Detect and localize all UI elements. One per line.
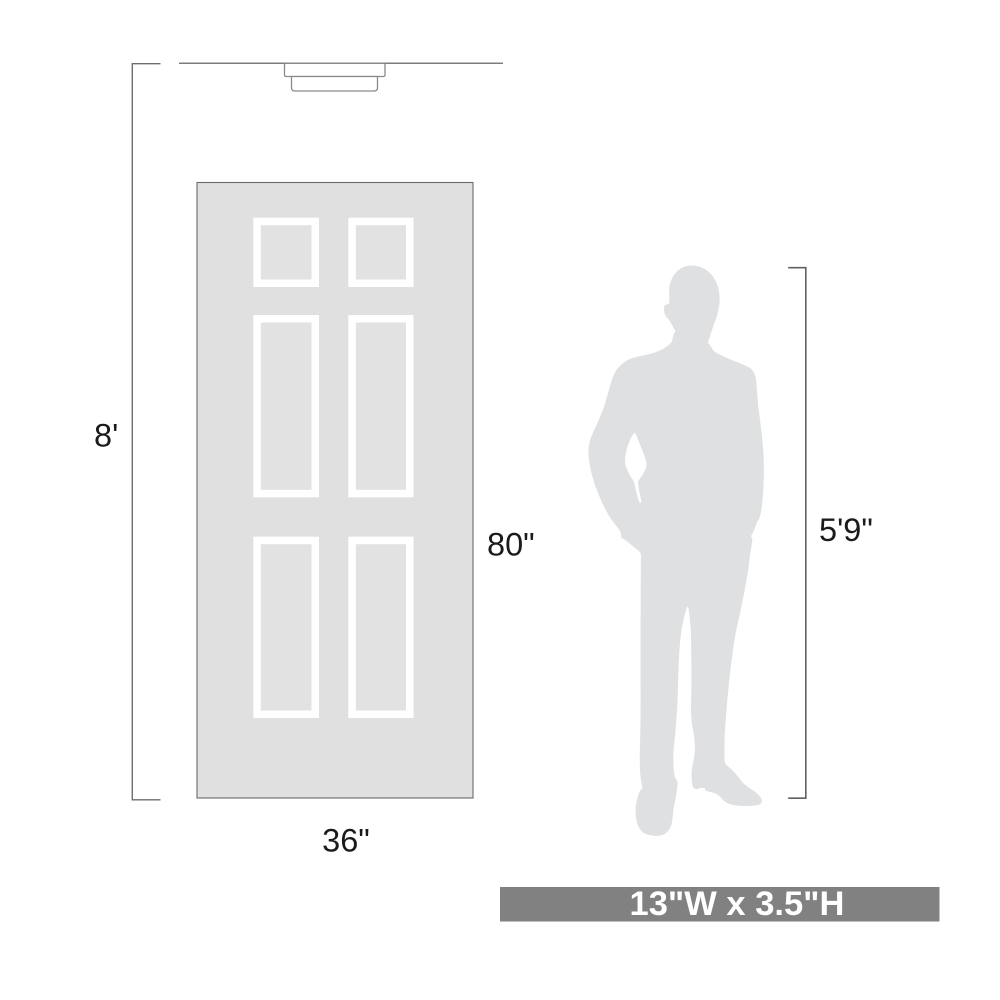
svg-text:80": 80" — [487, 527, 535, 563]
svg-text:13"W x 3.5"H: 13"W x 3.5"H — [630, 885, 845, 923]
svg-text:36": 36" — [322, 823, 370, 859]
svg-text:5'9": 5'9" — [819, 512, 873, 548]
svg-text:8': 8' — [94, 418, 118, 454]
